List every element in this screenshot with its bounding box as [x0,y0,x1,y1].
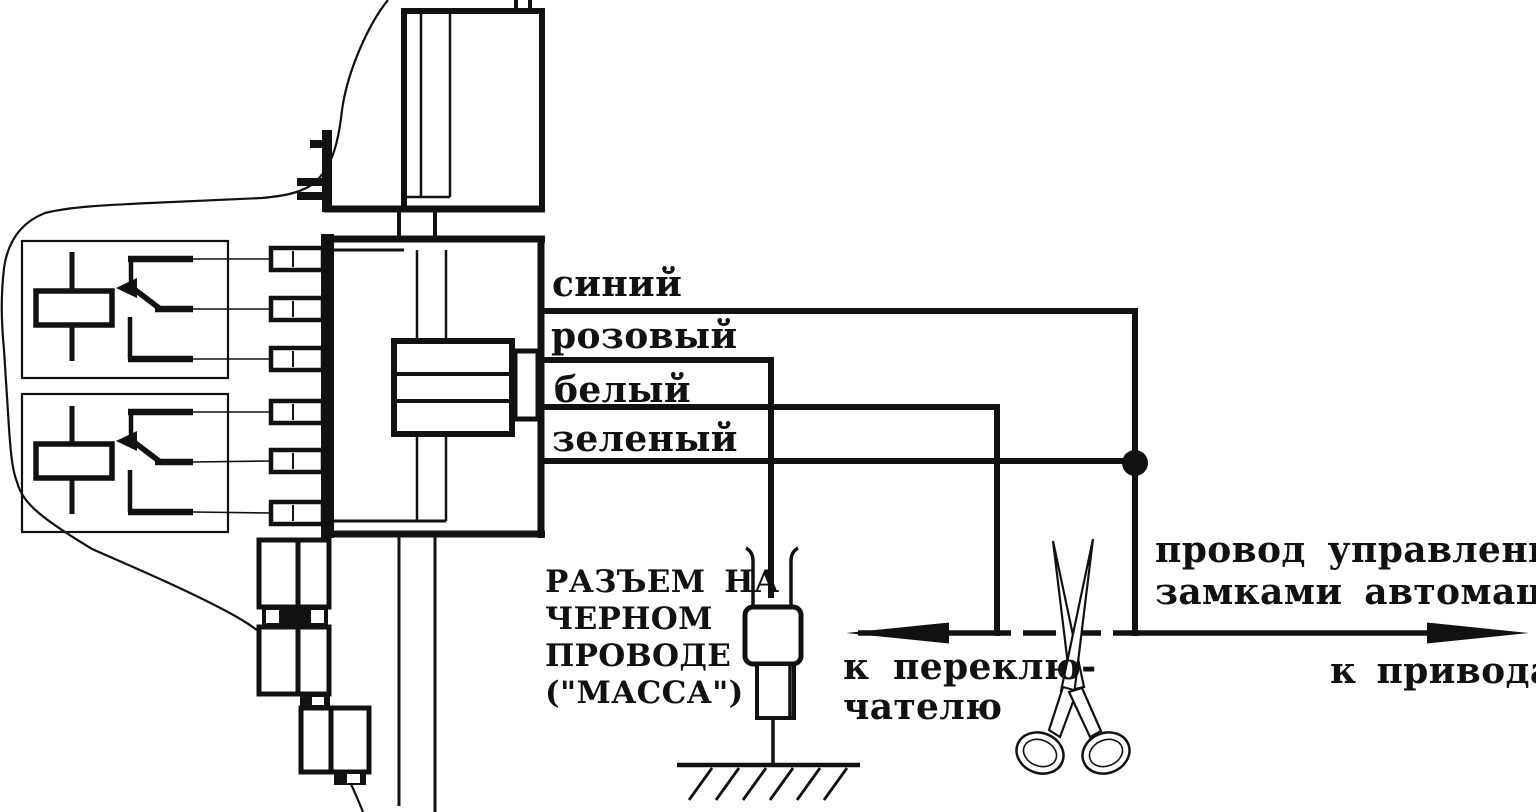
right-arrowhead [1427,623,1529,644]
to-switch-label: к переклю- чателю [843,647,1097,727]
ground-connector-note-line1: РАЗЪЕМ НА [545,564,779,601]
ground-connector-note-line2: ЧЕРНОМ [545,601,779,638]
control-wire-note-line2: замками автомашины [1155,571,1536,613]
relay-unit-2 [22,394,272,532]
wire-label-white: белый [554,372,691,408]
to-switch-label-line1: к переклю- [843,647,1097,687]
to-actuators-label: к приводам [1330,653,1536,689]
ground-connector-note: РАЗЪЕМ НА ЧЕРНОМ ПРОВОДЕ ("МАССА") [545,564,779,712]
upper-actuator-block [297,0,545,240]
connector-pins [271,248,323,524]
control-wire-note-line1: провод управления [1155,529,1536,571]
lock-control-wire [846,623,1529,644]
wire-label-blue: синий [552,266,682,302]
junction-branch [1122,308,1148,636]
relay-unit-1 [22,241,272,378]
to-switch-label-line2: чателю [843,687,1097,727]
control-wire-note: провод управления замками автомашины [1155,529,1536,613]
ground-icon [677,765,860,800]
wiring-diagram-canvas: синий розовый белый зеленый РАЗЪЕМ НА ЧЕ… [0,0,1536,812]
wire-label-green: зеленый [552,421,738,457]
fuse-block-column [259,540,369,785]
left-arrowhead [846,623,949,644]
ground-connector-note-line3: ПРОВОДЕ [545,638,779,675]
ground-connector-note-line4: ("МАССА") [545,675,779,712]
junction-dot [1122,450,1148,476]
wire-label-pink: розовый [551,318,738,354]
